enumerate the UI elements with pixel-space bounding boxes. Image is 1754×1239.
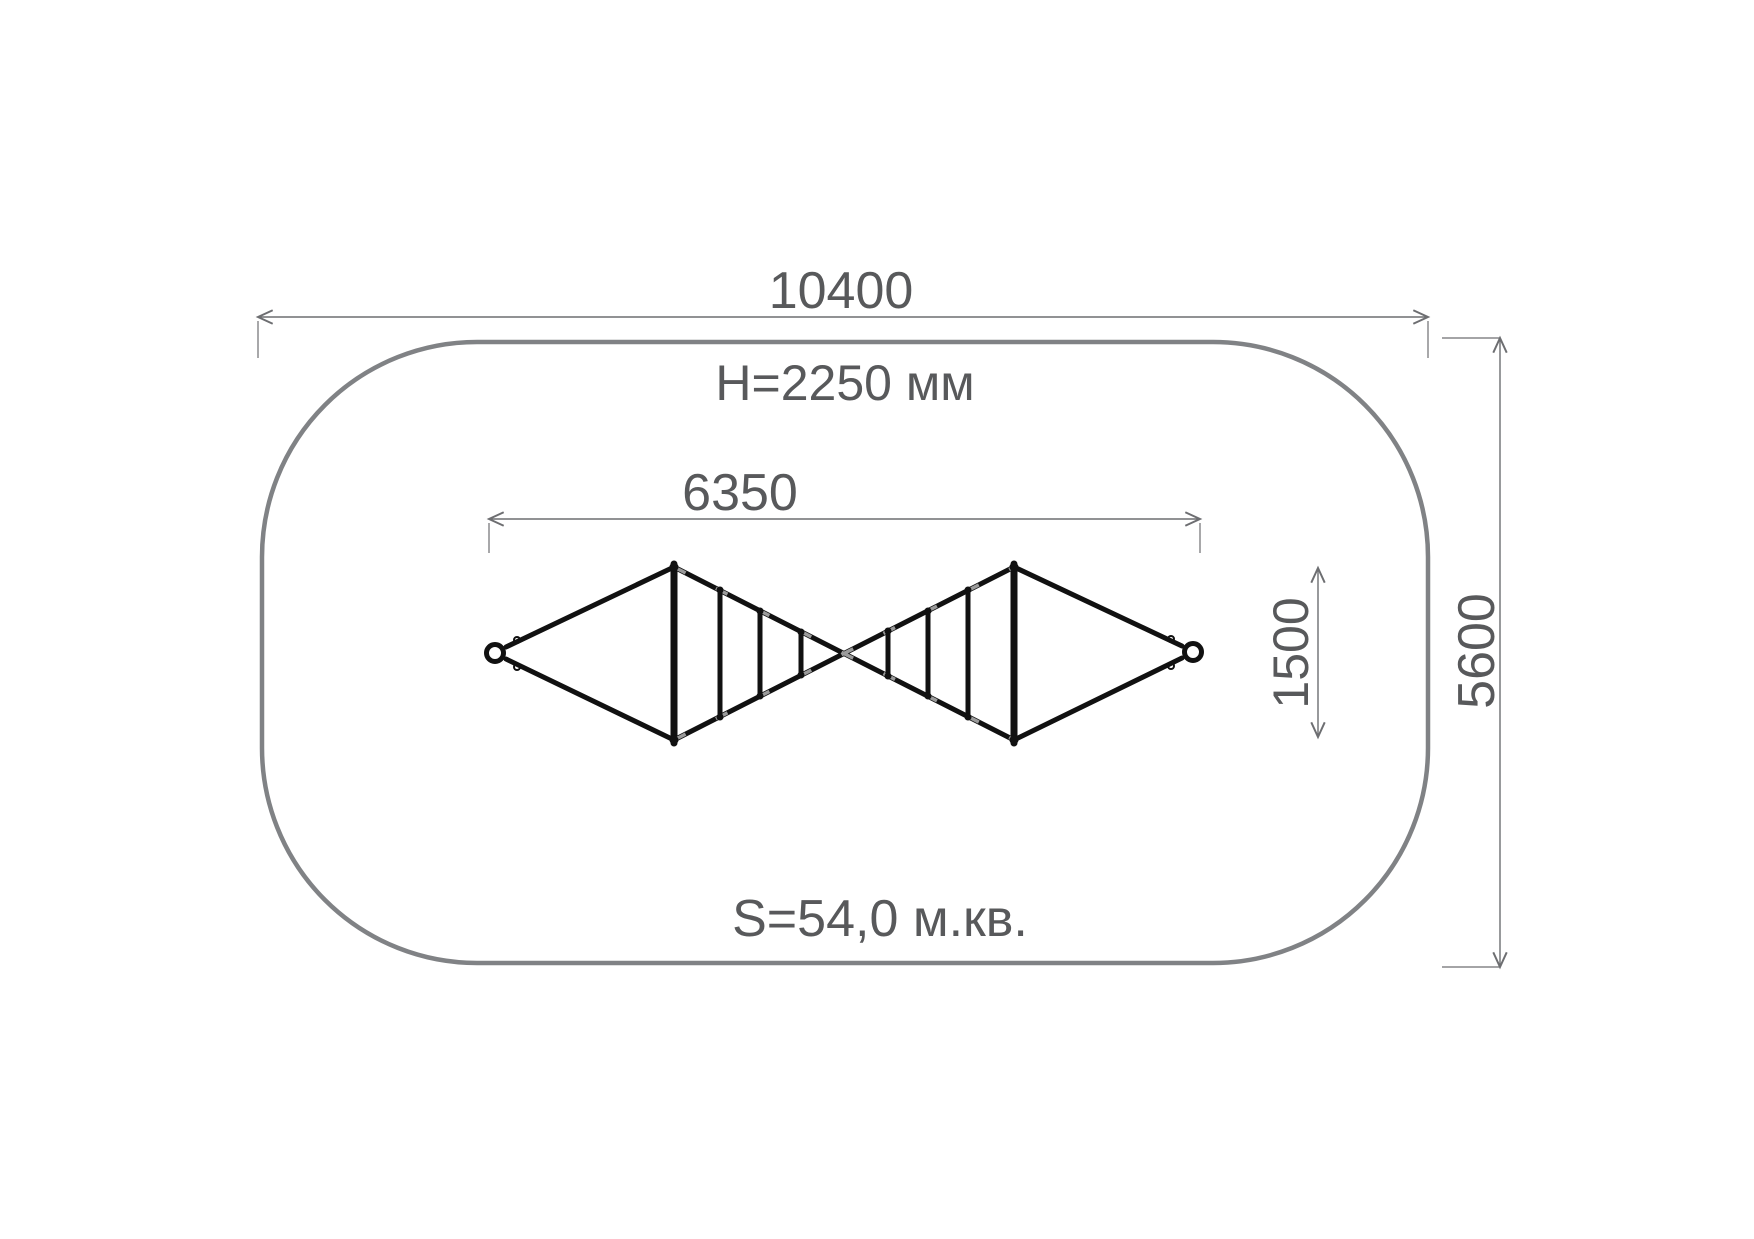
knot [885,673,892,680]
knot [757,608,764,615]
knot [1010,563,1019,572]
knot [757,693,764,700]
knot [670,736,679,745]
knot [717,587,724,594]
right-guy-rope-bottom [1014,658,1182,740]
right-anchor-ring [1185,644,1202,661]
knot [925,608,932,615]
knot [965,714,972,721]
left-guy-rope-bottom [506,659,674,740]
right-guy-rope-top [1014,567,1182,646]
knot [925,693,932,700]
dimension-equipment-length: 6350 [489,464,1200,553]
label-site-height: 5600 [1448,593,1506,709]
rope-structure [487,563,1202,745]
label-equipment-height: H=2250 мм [715,355,974,411]
knot [885,628,892,635]
plan-drawing: 10400 H=2250 мм 6350 1500 5600 S=54,0 м.… [0,0,1754,1239]
knot [965,587,972,594]
dimension-site-height: 5600 [1442,338,1506,967]
left-anchor-ring [487,645,504,662]
label-site-width: 10400 [769,262,914,320]
knot [1010,736,1019,745]
label-equipment-half-width: 1500 [1263,597,1319,708]
left-guy-rope-top [506,567,674,647]
drawing-canvas: 10400 H=2250 мм 6350 1500 5600 S=54,0 м.… [0,0,1754,1239]
label-area: S=54,0 м.кв. [732,890,1028,948]
knot [670,563,679,572]
label-equipment-length: 6350 [682,464,798,522]
knot [798,672,805,679]
knot [717,714,724,721]
knot [798,629,805,636]
dimension-equipment-half-width: 1500 [1263,568,1319,737]
